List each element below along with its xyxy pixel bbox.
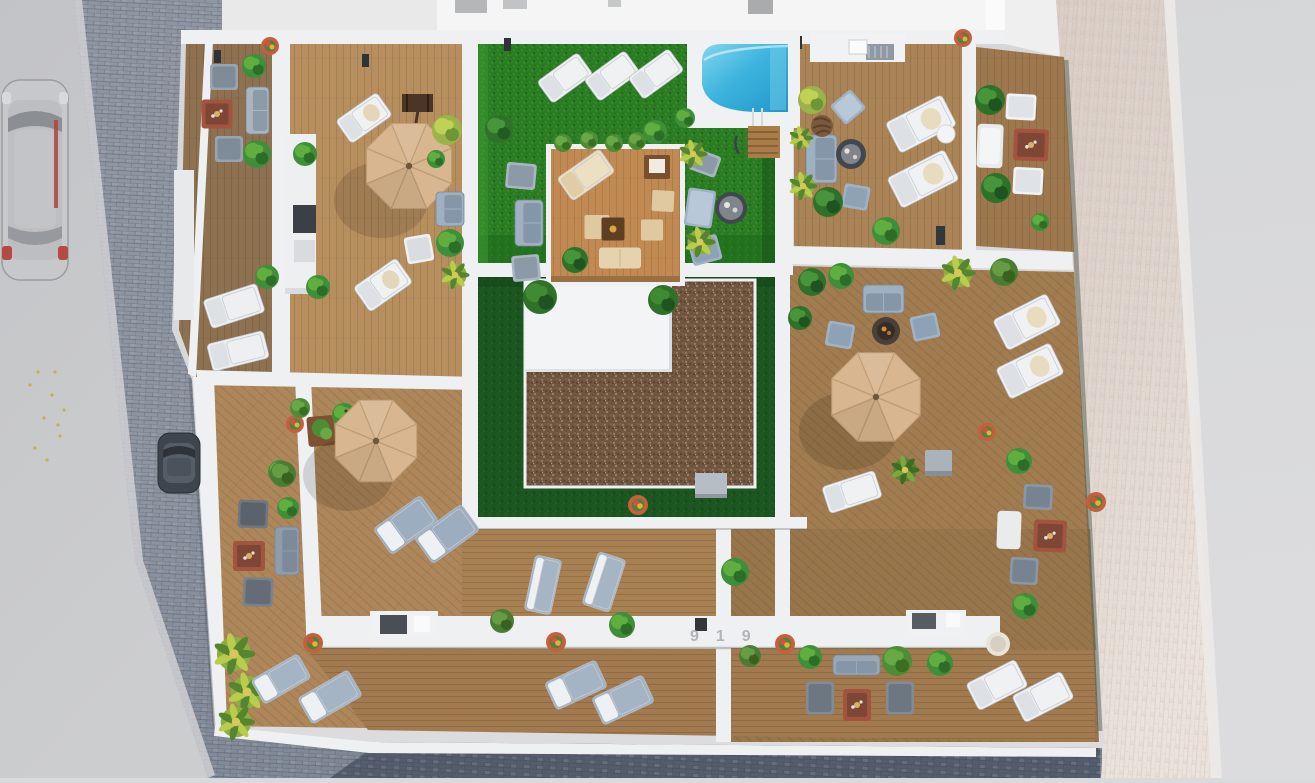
svg-text:919: 919 — [690, 628, 768, 645]
